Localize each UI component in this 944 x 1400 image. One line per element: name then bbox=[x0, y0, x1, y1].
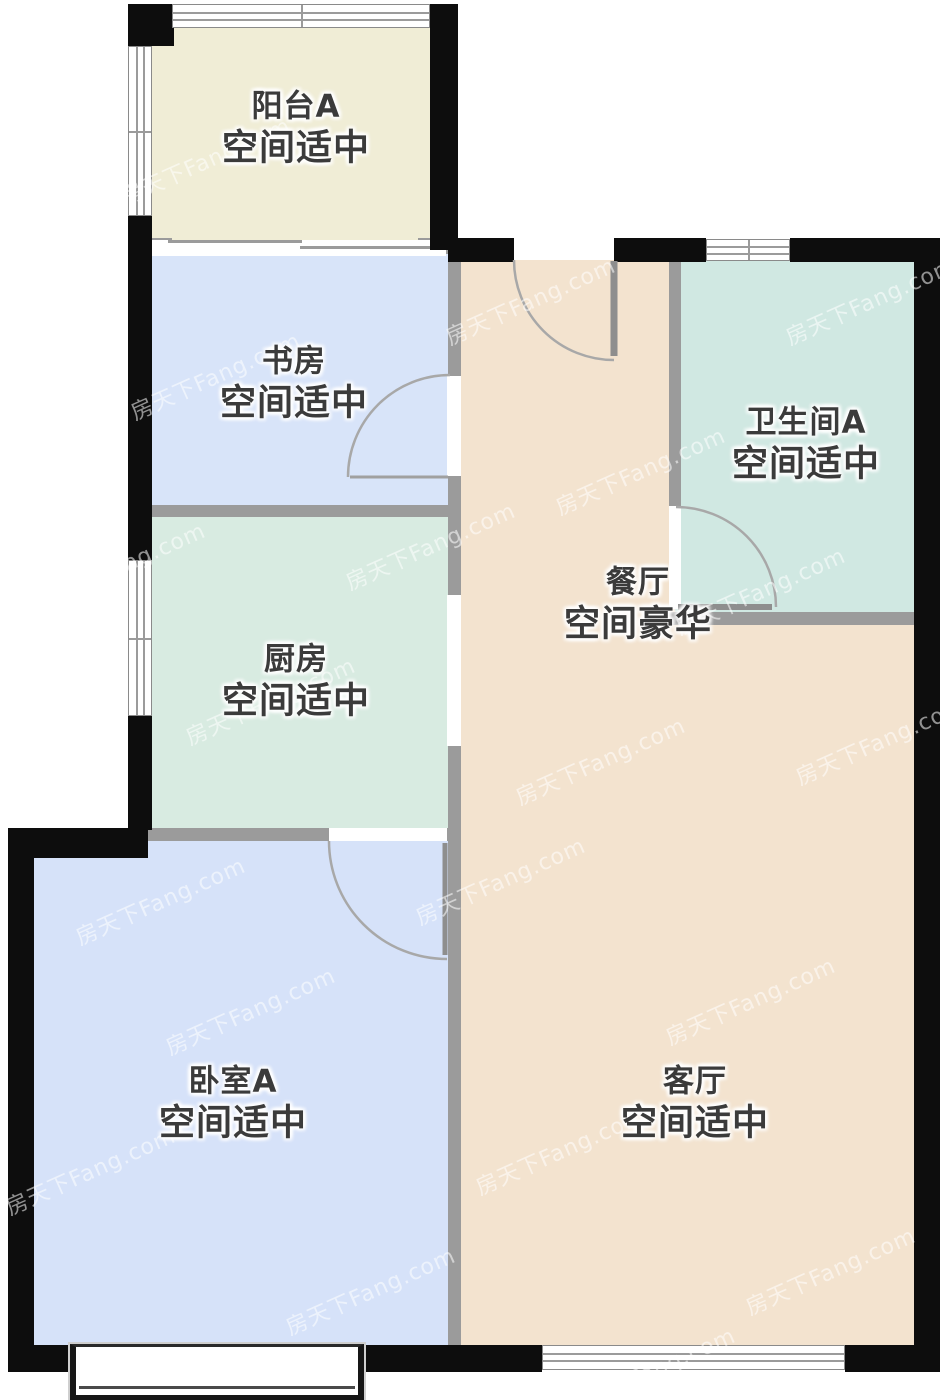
balcony-top-window bbox=[172, 4, 430, 28]
room-name: 厨房 bbox=[222, 639, 370, 679]
window-line bbox=[129, 638, 151, 640]
room-name: 书房 bbox=[220, 341, 368, 381]
wall-study-kitchen bbox=[148, 505, 461, 517]
wall-bottom-1 bbox=[8, 1345, 76, 1372]
wall-top-1 bbox=[448, 238, 514, 262]
wall-balcony-right bbox=[430, 4, 458, 250]
bedroom-bay-window bbox=[70, 1344, 364, 1400]
room-name: 卫生间A bbox=[732, 402, 880, 442]
room-name: 卧室A bbox=[159, 1061, 307, 1101]
room-label-living: 客厅 空间适中 bbox=[621, 1061, 769, 1144]
kitchen-left-window bbox=[128, 560, 152, 716]
balcony-slider-leaf-2 bbox=[300, 246, 432, 249]
window-line bbox=[543, 1353, 844, 1355]
wall-study-dining-upper bbox=[448, 258, 461, 376]
floorplan-canvas: 房天下Fang.com房天下Fang.com房天下Fang.com房天下Fang… bbox=[0, 0, 944, 1400]
window-line bbox=[129, 131, 151, 133]
room-status: 空间适中 bbox=[222, 680, 370, 723]
bathroom-top-window bbox=[706, 239, 790, 261]
window-line bbox=[748, 240, 750, 260]
wall-balcony-left-bottom bbox=[128, 214, 152, 252]
room-label-bathroom: 卫生间A 空间适中 bbox=[732, 402, 880, 485]
wall-left-study bbox=[128, 250, 152, 560]
living-bottom-window bbox=[542, 1345, 845, 1370]
bay-window-inner-line bbox=[79, 1386, 355, 1389]
study-door-opening bbox=[447, 376, 461, 476]
room-label-kitchen: 厨房 空间适中 bbox=[222, 639, 370, 722]
room-status: 空间适中 bbox=[220, 382, 368, 425]
wall-bottom-3 bbox=[845, 1345, 940, 1372]
wall-left-step bbox=[8, 828, 148, 858]
wall-left-kitchen bbox=[128, 716, 152, 830]
room-label-balcony: 阳台A 空间适中 bbox=[222, 86, 370, 169]
wall-bathroom-left bbox=[669, 256, 681, 506]
window-line bbox=[301, 5, 303, 27]
balcony-left-window bbox=[128, 46, 152, 216]
entry-door-opening bbox=[514, 237, 614, 260]
room-name: 阳台A bbox=[222, 86, 370, 126]
room-status: 空间适中 bbox=[222, 127, 370, 170]
kitchen-passage-opening bbox=[447, 595, 461, 746]
room-status: 空间适中 bbox=[159, 1102, 307, 1145]
room-status: 空间适中 bbox=[621, 1102, 769, 1145]
wall-left-bedroom bbox=[8, 856, 34, 1372]
room-label-study: 书房 空间适中 bbox=[220, 341, 368, 424]
room-label-bedroom: 卧室A 空间适中 bbox=[159, 1061, 307, 1144]
room-name: 客厅 bbox=[621, 1061, 769, 1101]
room-label-dining: 餐厅 空间豪华 bbox=[564, 562, 712, 645]
room-status: 空间适中 bbox=[732, 443, 880, 486]
wall-top-2 bbox=[614, 238, 706, 262]
wall-bottom-2 bbox=[358, 1345, 542, 1372]
wall-balcony-corner-tl bbox=[128, 4, 174, 46]
room-name: 餐厅 bbox=[564, 562, 712, 602]
window-line bbox=[543, 1360, 844, 1362]
bedroom-door-opening bbox=[329, 828, 447, 841]
wall-study-dining-lower bbox=[448, 476, 461, 595]
balcony-slider-leaf-1 bbox=[168, 240, 302, 243]
wall-right bbox=[914, 238, 940, 1372]
room-status: 空间豪华 bbox=[564, 603, 712, 646]
